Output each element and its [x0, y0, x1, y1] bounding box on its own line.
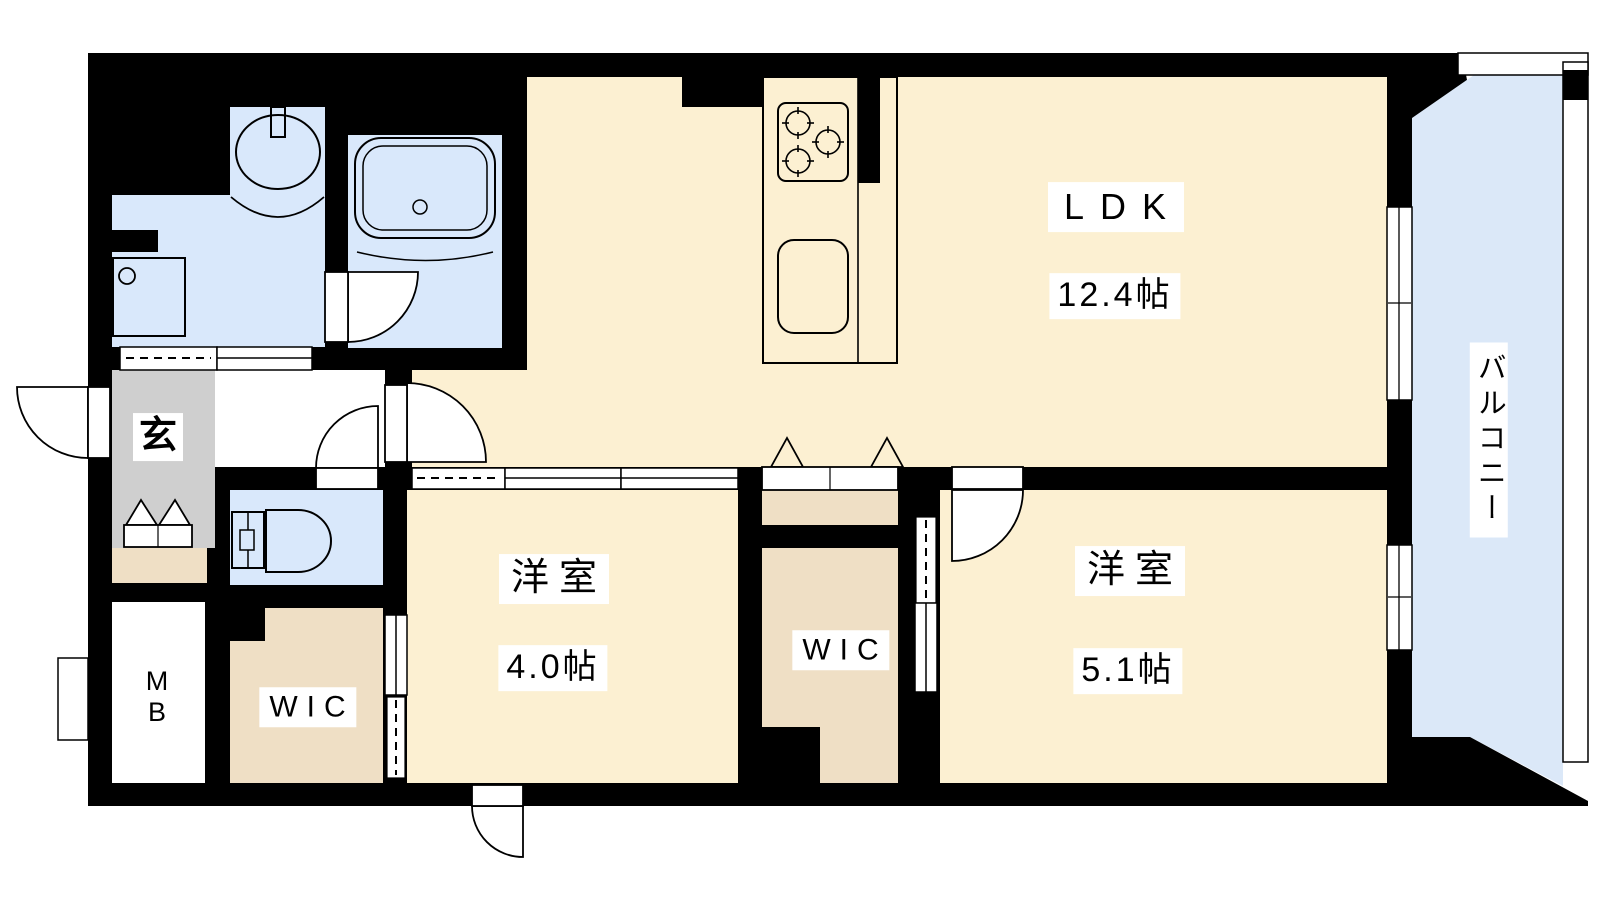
bedroom-a-size-label: 4.0帖 — [498, 645, 607, 691]
wall-wic-left-notch — [230, 608, 265, 641]
ldk-label: LDK — [1048, 182, 1184, 232]
wic-left-label: WIC — [259, 687, 356, 727]
bedroom-a-label: 洋室 — [499, 554, 609, 604]
entry-door — [88, 387, 110, 458]
bedroom-a-service-door-swing — [472, 806, 523, 857]
bedroom-b-door — [952, 467, 1023, 489]
wall-kitchen-return — [682, 53, 763, 107]
wall-washroom-notch — [112, 230, 158, 252]
floor-plan: LDK 12.4帖 洋室 4.0帖 洋室 5.1帖 WIC WIC 玄 M B … — [0, 0, 1600, 900]
bedroom-a-floor — [407, 490, 738, 783]
bedroom-a-service-door — [472, 785, 523, 806]
wall-wic-middle-notch — [762, 727, 820, 783]
wall-kitchen-stub — [858, 77, 880, 183]
washroom-floor-lower — [112, 195, 230, 347]
washroom-sliding-door — [120, 347, 312, 370]
balcony-railing-post — [1563, 70, 1588, 100]
bedroom-b-balcony-window — [1387, 545, 1412, 650]
ldk-size-label: 12.4帖 — [1049, 273, 1180, 319]
bedroom-a-partition-sliding-door — [412, 468, 738, 489]
entry-door-swing — [17, 387, 88, 458]
ldk-door — [385, 385, 407, 462]
toilet-flush-icon — [240, 530, 254, 550]
ldk-floor — [527, 77, 1387, 467]
wic-middle-sliding-door — [915, 517, 937, 692]
entrance-label: 玄 — [133, 413, 183, 461]
balcony-railing-right — [1563, 62, 1588, 762]
shoe-cabinet — [112, 548, 207, 583]
bathroom-door — [325, 272, 348, 342]
meter-box-panel — [58, 658, 88, 740]
bedroom-b-size-label: 5.1帖 — [1073, 648, 1182, 694]
ldk-balcony-window — [1387, 207, 1412, 400]
hall-closet-floor — [762, 490, 898, 525]
wic-middle-label: WIC — [792, 630, 889, 670]
meter-box-label: M B — [140, 664, 175, 730]
bedroom-b-label: 洋室 — [1075, 546, 1185, 596]
toilet-door — [316, 468, 378, 489]
floor-plan-drawing — [0, 0, 1600, 900]
washroom-floor-upper — [230, 107, 325, 347]
balcony-label: バルコニー — [1470, 343, 1508, 538]
wic-left-sliding-door — [385, 615, 407, 778]
